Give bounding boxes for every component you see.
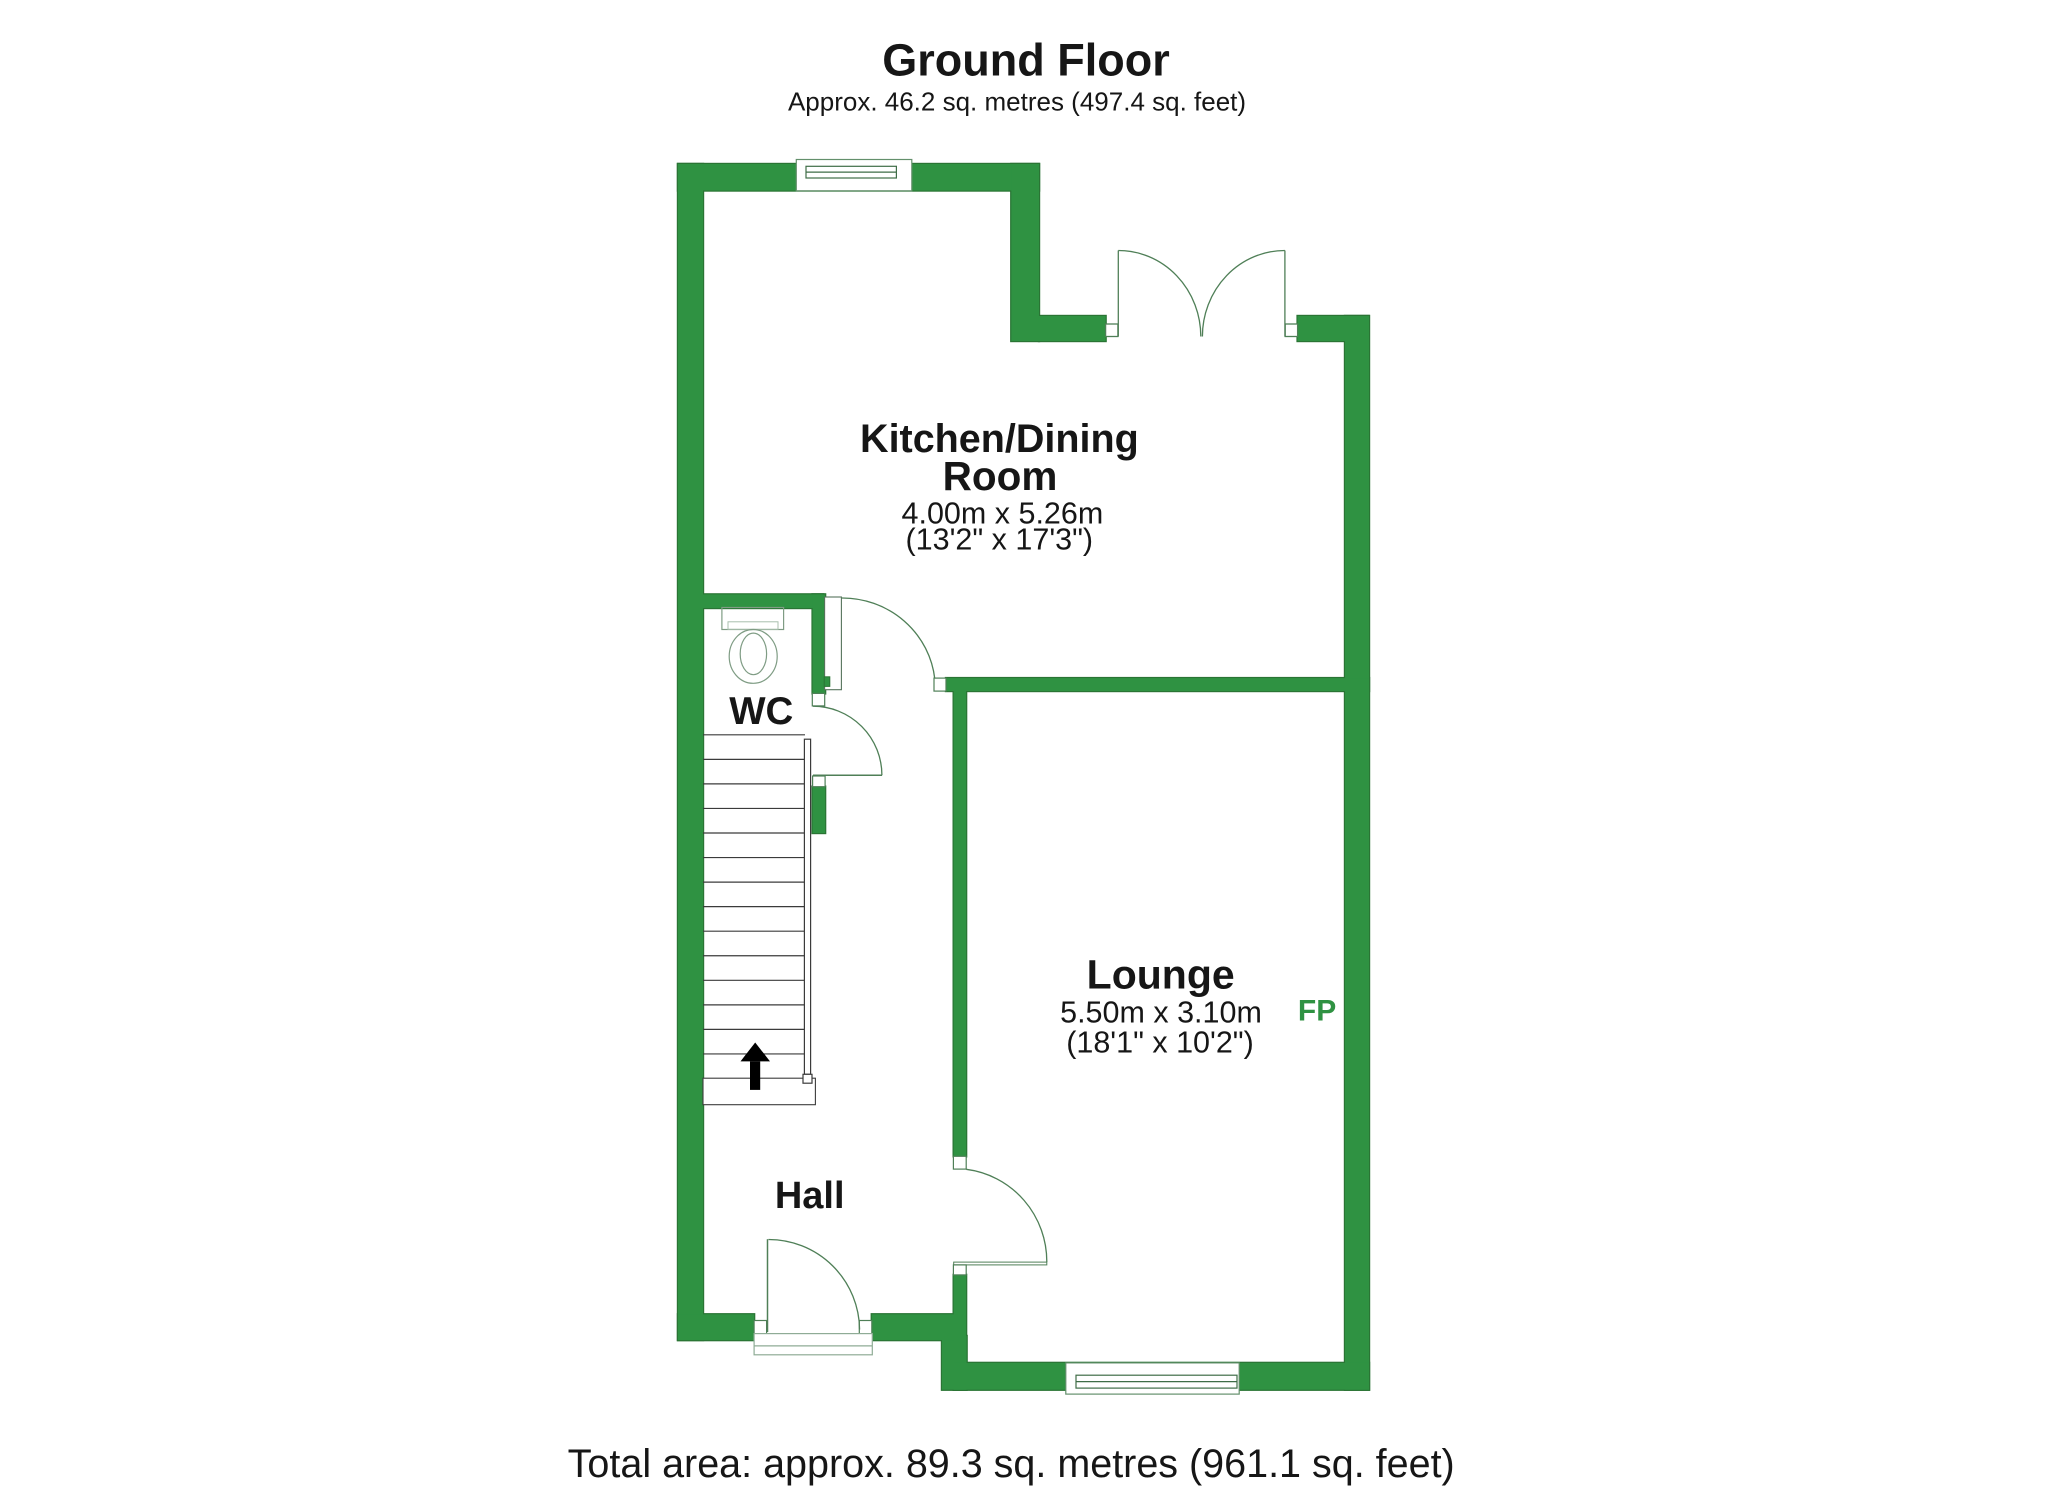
- svg-text:Ground Floor: Ground Floor: [882, 35, 1169, 86]
- svg-text:(13'2" x 17'3"): (13'2" x 17'3"): [906, 523, 1094, 557]
- svg-text:(18'1" x 10'2"): (18'1" x 10'2"): [1066, 1026, 1254, 1060]
- svg-text:Hall: Hall: [775, 1175, 845, 1217]
- svg-text:5.50m x 3.10m: 5.50m x 3.10m: [1060, 996, 1262, 1030]
- svg-text:Total area: approx. 89.3 sq. m: Total area: approx. 89.3 sq. metres (961…: [568, 1442, 1455, 1486]
- svg-text:FP: FP: [1298, 995, 1336, 1028]
- svg-text:Approx. 46.2 sq. metres (497.4: Approx. 46.2 sq. metres (497.4 sq. feet): [788, 87, 1246, 117]
- svg-text:WC: WC: [729, 690, 793, 733]
- svg-text:Lounge: Lounge: [1087, 952, 1235, 998]
- svg-text:Room: Room: [943, 453, 1058, 499]
